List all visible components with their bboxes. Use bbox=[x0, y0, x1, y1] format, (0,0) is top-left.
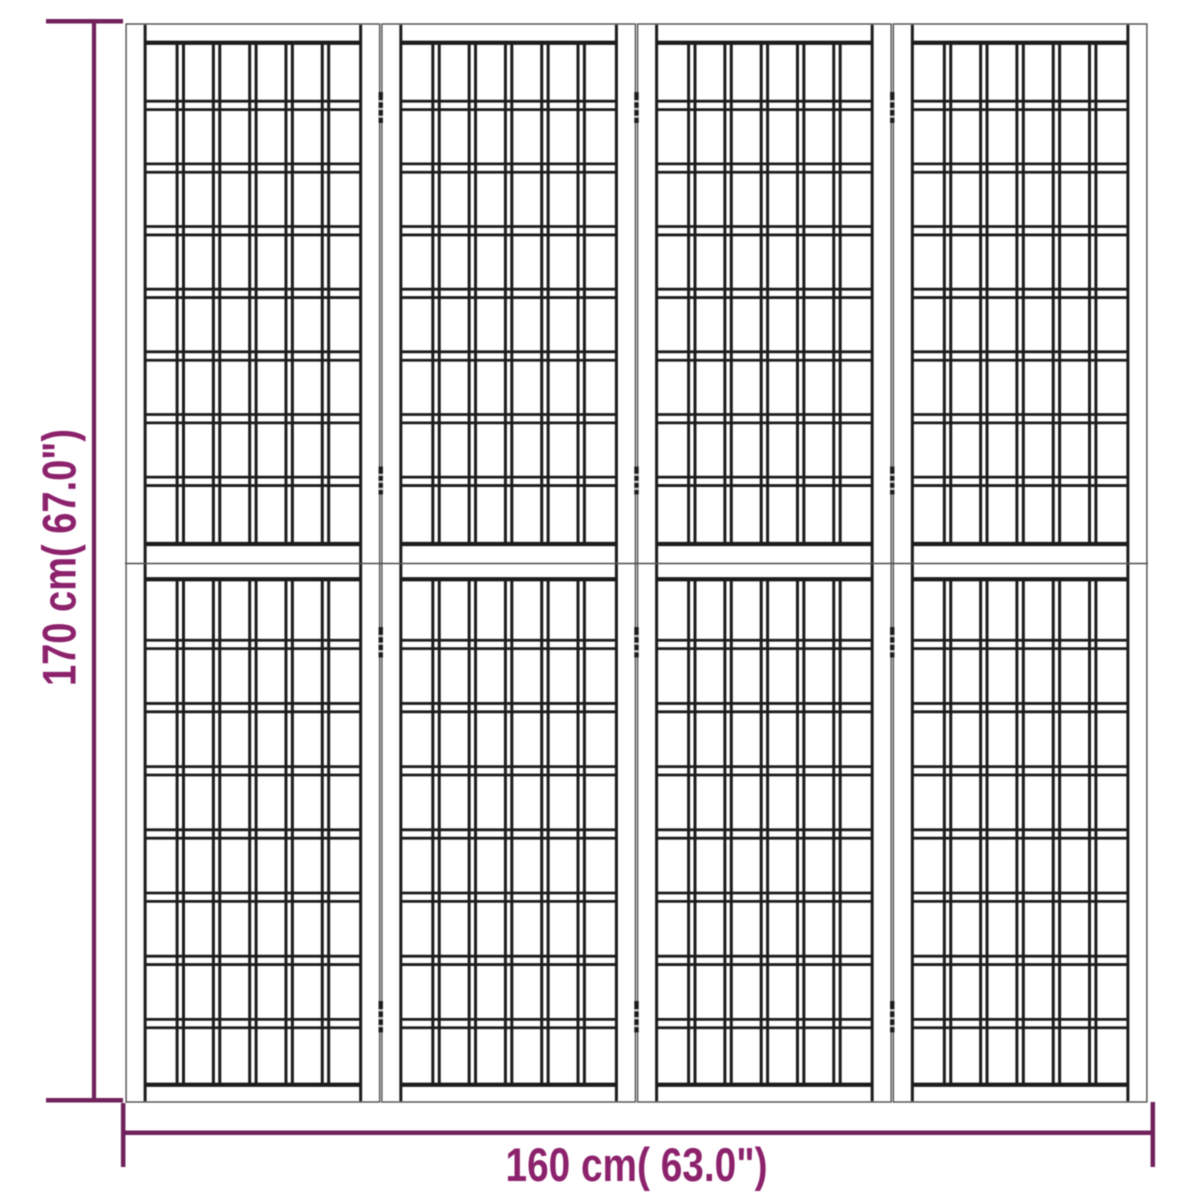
svg-text:170 cm( 67.0"): 170 cm( 67.0") bbox=[33, 429, 86, 686]
svg-text:160 cm( 63.0"): 160 cm( 63.0") bbox=[506, 1138, 768, 1191]
